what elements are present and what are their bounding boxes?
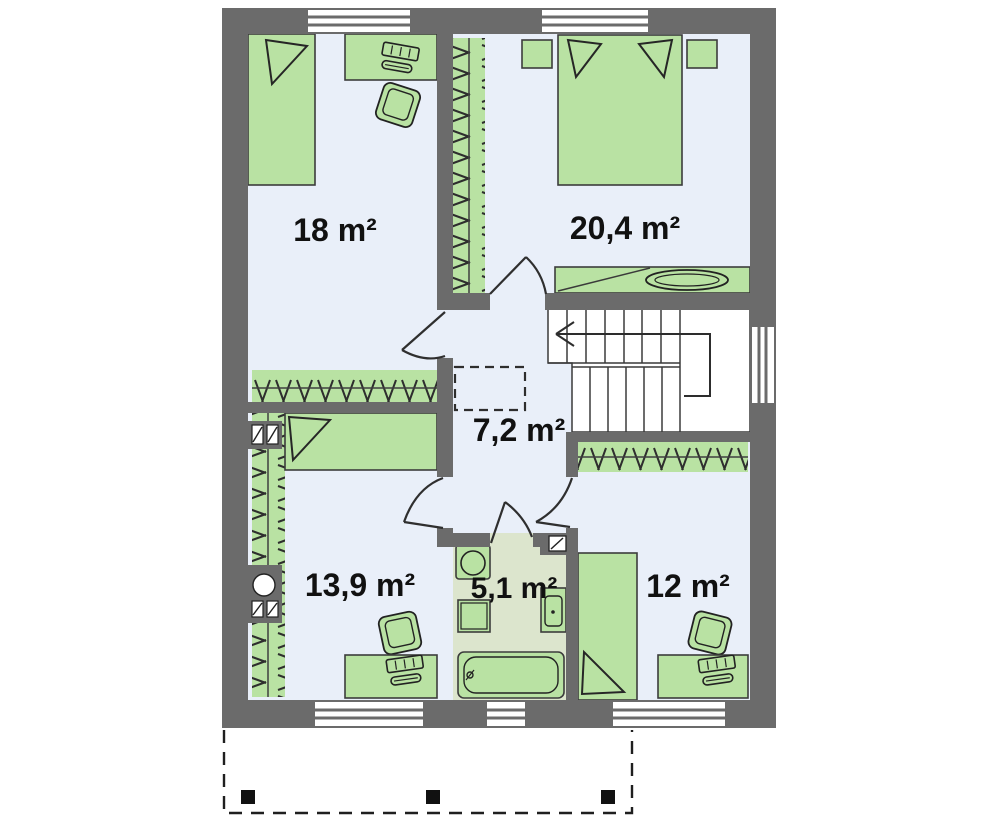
window [542,10,648,32]
terrace-post [426,790,440,804]
bed-icon [578,553,637,700]
wall-stairs-bottom [566,432,750,442]
window [613,702,725,726]
wall-bath-top-left [453,533,490,547]
wardrobe-icon [252,413,285,697]
room-area-label: 7,2 m² [473,412,565,448]
chimney-vent-block [248,565,282,623]
wall-bedrooms-top-divider [437,34,453,310]
double-bed-icon [558,35,682,185]
window [487,702,525,726]
wall-hall-left-upper [437,358,453,477]
bed-icon [248,34,315,185]
window [308,10,410,32]
wardrobe-icon [578,442,748,472]
terrace-post [601,790,615,804]
wall-bedroom4-left-upper [566,432,578,477]
room-area-label: 18 m² [293,212,377,248]
staircase [548,308,750,432]
wall-bedroom1-bottom [248,402,437,413]
wall-hall-top-left [453,293,490,310]
room-area-label: 12 m² [646,568,730,604]
wall-stairs-top [545,293,750,310]
room-area-label: 20,4 m² [570,210,680,246]
room-area-label: 13,9 m² [305,567,415,603]
window [315,702,423,726]
office-chair-icon [377,610,422,655]
exterior-wall-top [222,8,776,34]
nightstand-icon [522,40,552,68]
wardrobe-icon [252,370,437,402]
chimney-vent-block [248,421,282,449]
terrace-post [241,790,255,804]
wall-hall-left-lower [437,528,453,547]
bed-icon [285,413,437,470]
plant-icon [646,270,728,290]
bathtub-icon [458,652,564,698]
floor-plan-svg: 18 m² 20,4 m² 7,2 m² 13,9 m² 5,1 m² 12 m… [0,0,1000,822]
room-area-label: 5,1 m² [471,572,558,605]
nightstand-icon [687,40,717,68]
vent-shaft [540,533,578,555]
office-chair-icon [687,610,733,656]
wardrobe-icon [453,38,485,293]
window [752,327,774,403]
exterior-wall-left [222,8,248,728]
